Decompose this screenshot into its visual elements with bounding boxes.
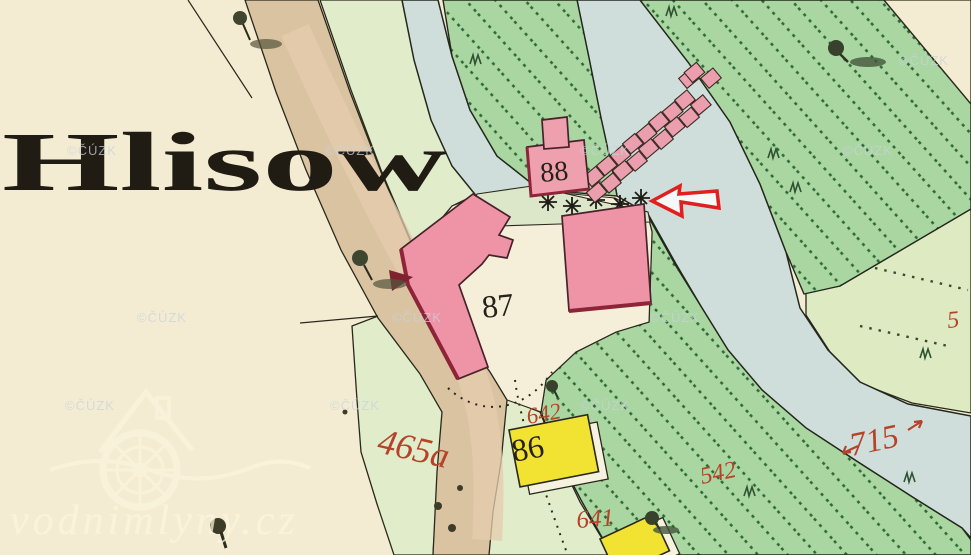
site-watermark-text: vodnimlyny.cz	[10, 498, 299, 544]
map-viewport: Hlisow 88 87 86 465a 642 641 542 715 5 ©…	[0, 0, 971, 555]
cuzk-watermark: ©ČÚZK	[65, 398, 115, 413]
building-87-label: 87	[480, 286, 516, 325]
building-88-annex	[542, 117, 569, 149]
cuzk-watermark: ©ČÚZK	[580, 143, 630, 158]
cuzk-watermark: ©ČÚZK	[325, 143, 375, 158]
cuzk-watermark: ©ČÚZK	[67, 143, 117, 158]
parcel-641-label: 641	[576, 504, 615, 534]
cuzk-watermark: ©ČÚZK	[392, 310, 442, 325]
water-wheel-spokes	[103, 433, 177, 507]
cuzk-watermark: ©ČÚZK	[137, 310, 187, 325]
building-main-rect	[562, 204, 651, 311]
cuzk-watermark: ©ČÚZK	[650, 310, 700, 325]
cadastral-map-canvas: Hlisow 88 87 86 465a 642 641 542 715 5 ©…	[0, 0, 971, 555]
cuzk-watermark: ©ČÚZK	[330, 398, 380, 413]
cuzk-watermark: ©ČÚZK	[899, 53, 949, 68]
cuzk-watermark: ©ČÚZK	[580, 398, 630, 413]
place-name-label: Hlisow	[2, 116, 448, 209]
cuzk-watermark: ©ČÚZK	[843, 143, 893, 158]
building-86-label: 86	[508, 427, 546, 468]
building-88-label: 88	[539, 156, 570, 189]
